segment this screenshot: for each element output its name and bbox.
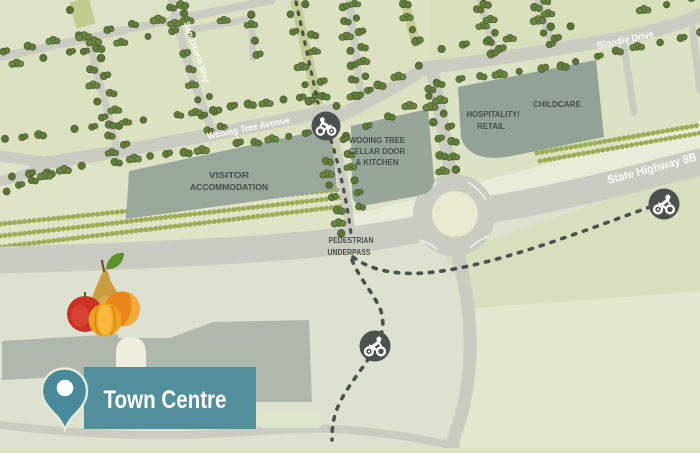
svg-text:PEDESTRIAN: PEDESTRIAN <box>329 236 374 245</box>
svg-text:CHILDCARE: CHILDCARE <box>533 100 582 109</box>
svg-text:WOOING TREE: WOOING TREE <box>349 136 406 145</box>
svg-text:VISITOR: VISITOR <box>209 171 249 180</box>
svg-text:CELLAR DOOR: CELLAR DOOR <box>349 147 405 156</box>
svg-text:HOSPITALITY/: HOSPITALITY/ <box>467 110 521 119</box>
svg-text:Town Centre: Town Centre <box>104 386 227 414</box>
svg-text:& KITCHEN: & KITCHEN <box>356 158 399 167</box>
svg-text:UNDERPASS: UNDERPASS <box>328 248 371 257</box>
svg-text:RETAIL: RETAIL <box>477 122 505 131</box>
svg-text:ACCOMMODATION: ACCOMMODATION <box>190 183 268 192</box>
